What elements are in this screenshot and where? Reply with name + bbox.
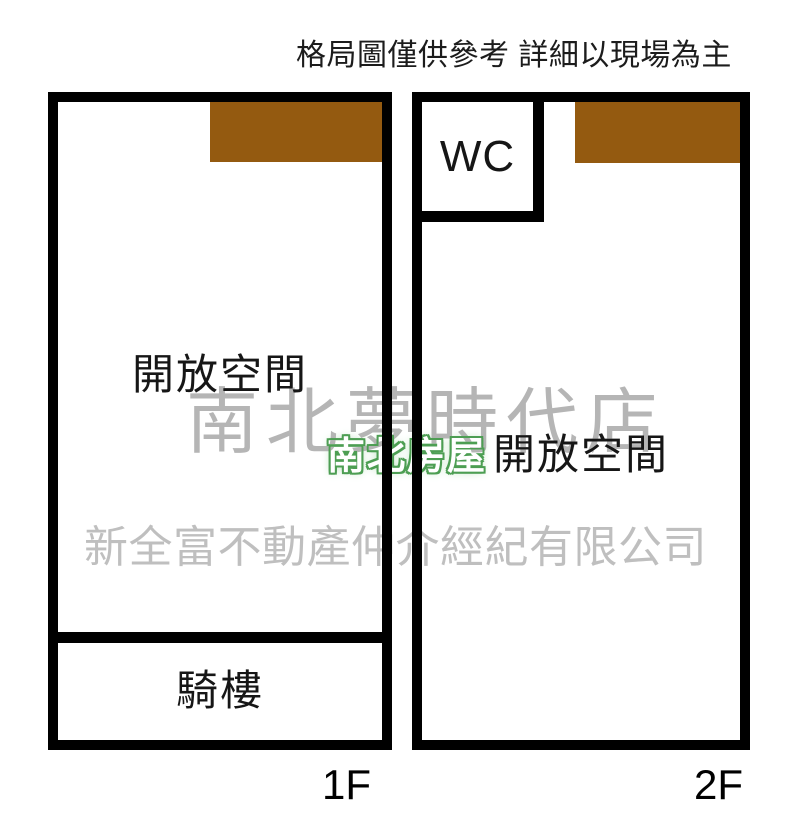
floor-plan-2f: WC 開放空間 <box>412 92 750 750</box>
disclaimer-text: 格局圖僅供參考 詳細以現場為主 <box>296 30 732 74</box>
wc-room: WC <box>422 102 544 222</box>
room-label-open-space-2f: 開放空間 <box>493 434 669 476</box>
floor-label-2f: 2F <box>694 764 743 806</box>
canopy-marker-2f <box>575 102 740 163</box>
room-label-open-space-1f: 開放空間 <box>132 354 308 396</box>
canopy-marker-1f <box>210 102 382 162</box>
floor-label-1f: 1F <box>322 764 371 806</box>
floor-plan-1f: 開放空間 騎樓 <box>48 92 392 750</box>
room-label-wc: WC <box>440 135 515 179</box>
wall-divider-arcade <box>58 632 382 643</box>
floor-plan-image: 格局圖僅供參考 詳細以現場為主 開放空間 騎樓 1F WC 開放空間 2F 南北… <box>0 0 800 839</box>
room-label-arcade: 騎樓 <box>176 670 264 712</box>
